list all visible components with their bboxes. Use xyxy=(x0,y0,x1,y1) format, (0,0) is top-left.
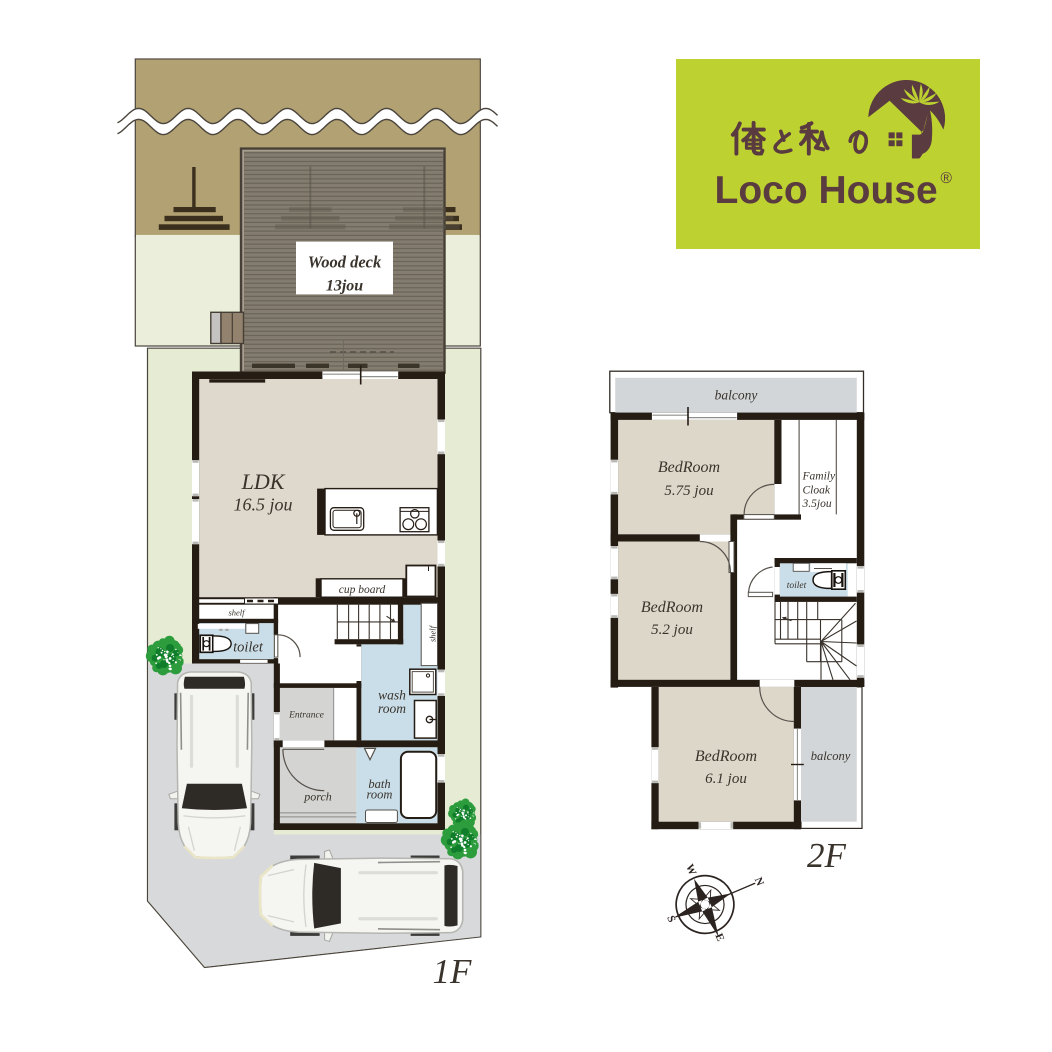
svg-text:3.5jou: 3.5jou xyxy=(802,498,832,510)
svg-text:13jou: 13jou xyxy=(326,278,363,295)
svg-text:BedRoom: BedRoom xyxy=(641,599,703,616)
svg-text:5.2 jou: 5.2 jou xyxy=(651,622,693,638)
svg-text:room: room xyxy=(367,788,393,802)
svg-text:porch: porch xyxy=(303,790,332,804)
svg-text:shelf: shelf xyxy=(228,608,246,618)
svg-text:E: E xyxy=(713,932,727,943)
svg-text:6.1 jou: 6.1 jou xyxy=(705,771,747,787)
svg-text:S: S xyxy=(664,914,677,924)
svg-text:5.75 jou: 5.75 jou xyxy=(664,483,713,499)
svg-text:balcony: balcony xyxy=(715,388,758,403)
svg-text:W: W xyxy=(683,862,698,877)
svg-text:balcony: balcony xyxy=(811,749,851,763)
svg-text:toilet: toilet xyxy=(787,581,807,591)
svg-text:Family: Family xyxy=(802,471,836,483)
svg-text:BedRoom: BedRoom xyxy=(658,459,720,476)
svg-text:cup board: cup board xyxy=(339,584,386,596)
svg-text:1F: 1F xyxy=(433,952,473,991)
svg-text:Cloak: Cloak xyxy=(803,485,831,497)
svg-text:®: ® xyxy=(941,170,953,187)
svg-text:shelf: shelf xyxy=(428,624,438,642)
svg-text:2F: 2F xyxy=(807,836,847,875)
svg-text:Wood deck: Wood deck xyxy=(308,253,382,272)
svg-text:BedRoom: BedRoom xyxy=(695,748,757,765)
svg-text:toilet: toilet xyxy=(233,640,264,656)
svg-text:N: N xyxy=(752,876,766,888)
svg-text:room: room xyxy=(378,701,406,716)
svg-text:Loco House: Loco House xyxy=(715,169,938,212)
svg-text:Entrance: Entrance xyxy=(288,711,324,721)
svg-text:LDK: LDK xyxy=(241,469,286,494)
svg-text:16.5 jou: 16.5 jou xyxy=(233,495,292,515)
